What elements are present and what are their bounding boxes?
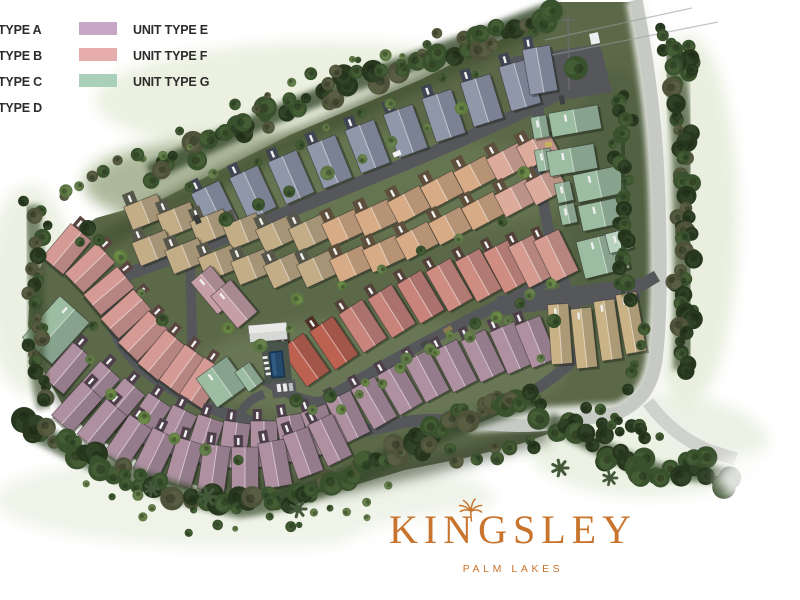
svg-text:UNIT TYPE F: UNIT TYPE F <box>133 49 208 63</box>
svg-text:TYPE A: TYPE A <box>0 23 42 37</box>
svg-text:TYPE C: TYPE C <box>0 75 42 89</box>
svg-text:TYPE B: TYPE B <box>0 49 42 63</box>
svg-text:TYPE D: TYPE D <box>0 101 42 115</box>
svg-text:UNIT TYPE E: UNIT TYPE E <box>133 23 208 37</box>
svg-text:UNIT TYPE G: UNIT TYPE G <box>133 75 209 89</box>
svg-text:KINGSLEY: KINGSLEY <box>389 507 637 552</box>
svg-text:PALM LAKES: PALM LAKES <box>463 563 564 575</box>
